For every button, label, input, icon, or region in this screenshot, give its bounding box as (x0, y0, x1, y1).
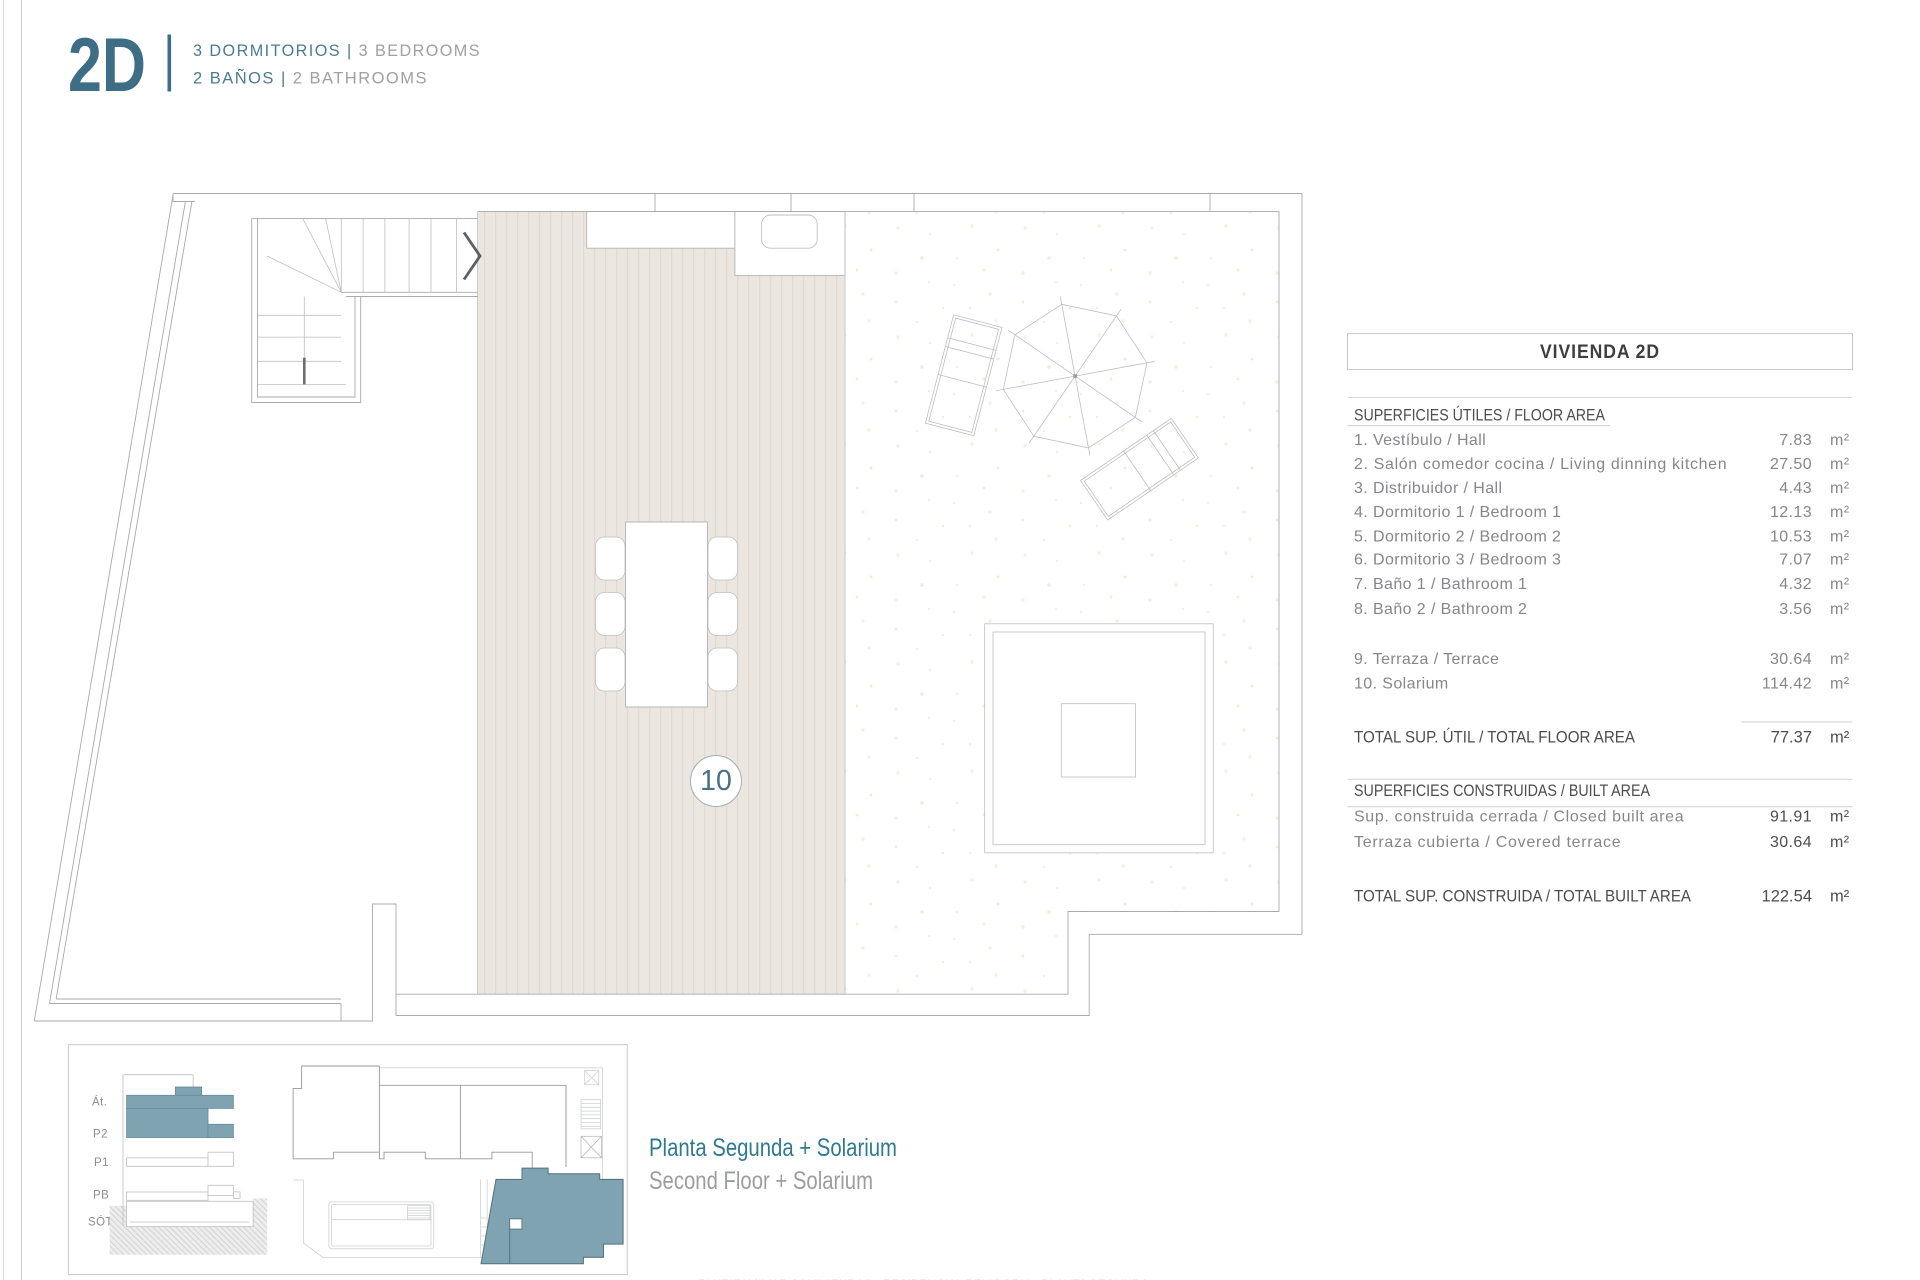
svg-text:SUPERFICIES CONSTRUIDAS / BUIL: SUPERFICIES CONSTRUIDAS / BUILT AREA (1354, 781, 1651, 800)
svg-text:m²: m² (1830, 432, 1850, 449)
svg-text:10. Solarium: 10. Solarium (1354, 675, 1449, 692)
svg-text:Sup. construida cerrada / Clos: Sup. construida cerrada / Closed built a… (1354, 808, 1684, 825)
svg-text:30.64: 30.64 (1770, 834, 1812, 851)
svg-text:PB: PB (93, 1189, 109, 1201)
svg-text:SUPERFICIES ÚTILES / FLOOR ARE: SUPERFICIES ÚTILES / FLOOR AREA (1354, 406, 1606, 425)
svg-text:7.07: 7.07 (1779, 552, 1812, 569)
svg-text:VIVIENDA 2D: VIVIENDA 2D (1540, 342, 1660, 363)
svg-text:3. Distribuidor / Hall: 3. Distribuidor / Hall (1354, 480, 1502, 497)
svg-text:1. Vestíbulo / Hall: 1. Vestíbulo / Hall (1354, 432, 1486, 449)
svg-text:TOTAL SUP. ÚTIL / TOTAL FLOOR: TOTAL SUP. ÚTIL / TOTAL FLOOR AREA (1354, 727, 1635, 746)
svg-text:Át.: Át. (92, 1096, 107, 1109)
svg-text:10.53: 10.53 (1770, 528, 1812, 545)
svg-text:8. Baño 2 / Bathroom 2: 8. Baño 2 / Bathroom 2 (1354, 601, 1527, 618)
svg-text:Second Floor + Solarium: Second Floor + Solarium (649, 1167, 873, 1195)
svg-text:5. Dormitorio 2 / Bedroom 2: 5. Dormitorio 2 / Bedroom 2 (1354, 528, 1561, 545)
svg-text:3.56: 3.56 (1779, 601, 1812, 618)
svg-text:P2: P2 (93, 1129, 108, 1141)
svg-text:m²: m² (1830, 480, 1850, 497)
svg-text:2D: 2D (68, 23, 146, 108)
svg-text:m²: m² (1830, 887, 1850, 905)
svg-text:3 DORMITORIOS | 3 BEDROOMS: 3 DORMITORIOS | 3 BEDROOMS (193, 41, 481, 60)
svg-text:6. Dormitorio 3 / Bedroom 3: 6. Dormitorio 3 / Bedroom 3 (1354, 552, 1561, 569)
svg-text:2 BAÑOS | 2 BATHROOMS: 2 BAÑOS | 2 BATHROOMS (193, 69, 428, 88)
svg-text:12.13: 12.13 (1770, 504, 1812, 521)
svg-text:10: 10 (700, 765, 732, 797)
svg-text:m²: m² (1830, 651, 1850, 668)
svg-text:4. Dormitorio 1 / Bedroom 1: 4. Dormitorio 1 / Bedroom 1 (1354, 504, 1561, 521)
svg-text:m²: m² (1830, 456, 1850, 473)
svg-text:m²: m² (1830, 728, 1850, 746)
svg-text:m²: m² (1830, 528, 1850, 545)
svg-text:4.32: 4.32 (1779, 576, 1812, 593)
svg-text:P1: P1 (94, 1157, 109, 1169)
svg-text:m²: m² (1830, 504, 1850, 521)
svg-text:m²: m² (1830, 808, 1850, 825)
svg-text:2. Salón comedor cocina / Livi: 2. Salón comedor cocina / Living dinning… (1354, 456, 1727, 473)
svg-text:m²: m² (1830, 576, 1850, 593)
svg-text:Terraza cubierta / Covered ter: Terraza cubierta / Covered terrace (1354, 834, 1621, 851)
svg-text:m²: m² (1830, 834, 1850, 851)
svg-text:4.43: 4.43 (1779, 480, 1812, 497)
svg-text:7. Baño 1 / Bathroom 1: 7. Baño 1 / Bathroom 1 (1354, 576, 1527, 593)
svg-text:TOTAL SUP. CONSTRUIDA / TOTAL: TOTAL SUP. CONSTRUIDA / TOTAL BUILT AREA (1354, 887, 1691, 905)
svg-text:9. Terraza / Terrace: 9. Terraza / Terrace (1354, 651, 1499, 668)
svg-text:77.37: 77.37 (1771, 728, 1812, 746)
svg-text:27.50: 27.50 (1770, 456, 1812, 473)
svg-text:91.91: 91.91 (1770, 808, 1812, 825)
svg-text:114.42: 114.42 (1762, 675, 1812, 692)
svg-text:122.54: 122.54 (1762, 887, 1812, 905)
svg-text:30.64: 30.64 (1770, 651, 1812, 668)
svg-text:Planta Segunda + Solarium: Planta Segunda + Solarium (649, 1134, 897, 1162)
svg-text:m²: m² (1830, 601, 1850, 618)
svg-text:m²: m² (1830, 675, 1850, 692)
svg-text:7.83: 7.83 (1779, 432, 1812, 449)
svg-text:m²: m² (1830, 552, 1850, 569)
